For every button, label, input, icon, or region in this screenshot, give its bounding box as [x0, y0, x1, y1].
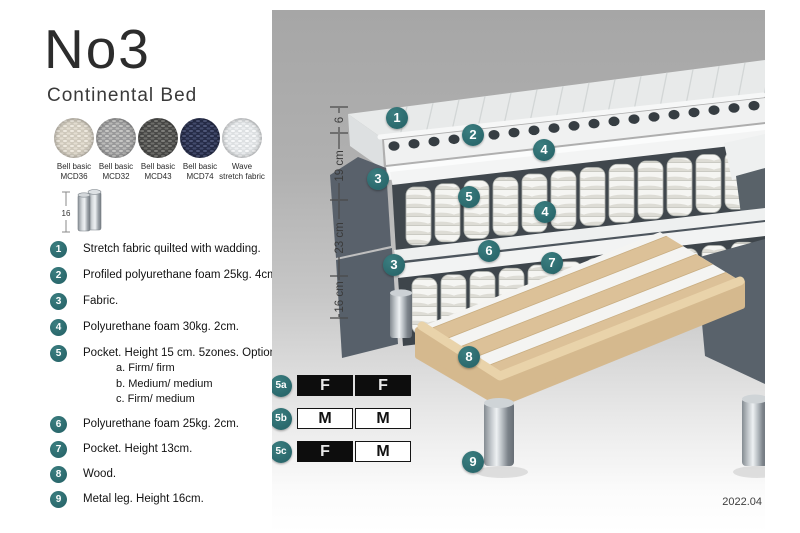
dim-label-lower-box: 23 cm: [334, 222, 346, 253]
legend-item-1: 1 Stretch fabric quilted with wadding.: [50, 241, 282, 258]
callout-4-lower-badge: 4: [534, 201, 556, 223]
fabric-swatch-label: Wave stretch fabric: [219, 162, 265, 181]
fabric-swatch-label: Bell basic MCD32: [99, 162, 133, 181]
leg-cylinders: [78, 190, 101, 231]
callout-7-badge: 7: [541, 252, 563, 274]
fabric-swatch-label: Bell basic MCD74: [183, 162, 217, 181]
legend-badge-7: 7: [50, 441, 67, 458]
version-label: 2022.04: [652, 496, 762, 508]
firmness-cell: F: [355, 375, 411, 396]
callout-3-lower-badge: 3: [383, 254, 405, 276]
firmness-cell: F: [297, 375, 353, 396]
callout-3-upper-badge: 3: [367, 168, 389, 190]
firmness-row-5b: 5b M M: [272, 408, 413, 429]
firmness-badge-5a: 5a: [272, 375, 292, 397]
legend-list: 1 Stretch fabric quilted with wadding. 2…: [50, 241, 282, 517]
firmness-row-5a: 5a F F: [272, 375, 413, 396]
legend-item-8: 8 Wood.: [50, 466, 282, 483]
fabric-swatch-image: [180, 118, 220, 158]
legend-badge-2: 2: [50, 267, 67, 284]
legend-item-9: 9 Metal leg. Height 16cm.: [50, 491, 282, 508]
legend-badge-3: 3: [50, 293, 67, 310]
dim-label-leg: 16 cm: [334, 281, 346, 312]
callout-8-badge: 8: [458, 346, 480, 368]
legend-text: Fabric.: [83, 293, 118, 310]
page-subtitle: Continental Bed: [47, 85, 197, 107]
legend-text: Polyurethane foam 30kg. 2cm.: [83, 319, 239, 336]
fabric-swatch-list: Bell basic MCD36 Bell basic MCD32 Bell b…: [53, 118, 263, 181]
legend-badge-9: 9: [50, 491, 67, 508]
firmness-cell: M: [355, 441, 411, 462]
fabric-swatch-label: Bell basic MCD43: [141, 162, 175, 181]
leg-height-label: 16: [62, 209, 71, 218]
firmness-row-5c: 5c F M: [272, 441, 413, 462]
legend-text: Polyurethane foam 25kg. 2cm.: [83, 416, 239, 433]
fabric-swatch-label: Bell basic MCD36: [57, 162, 91, 181]
legend-item-5-options: a. Firm/ firm b. Medium/ medium c. Firm/…: [116, 361, 282, 408]
legend-option-b: b. Medium/ medium: [116, 377, 282, 393]
fabric-swatch: Bell basic MCD36: [53, 118, 95, 181]
firmness-cell: M: [297, 408, 353, 429]
legend-badge-1: 1: [50, 241, 67, 258]
callout-2-badge: 2: [462, 124, 484, 146]
leg-dimension-icon: 16: [52, 186, 116, 243]
firmness-cell: M: [355, 408, 411, 429]
dim-label-upper-box: 19 cm: [334, 150, 346, 181]
legend-text: Wood.: [83, 466, 116, 483]
fabric-swatch: Bell basic MCD74: [179, 118, 221, 181]
metal-leg-back-left: [390, 289, 412, 338]
fabric-swatch: Wave stretch fabric: [221, 118, 263, 181]
legend-item-2: 2 Profiled polyurethane foam 25kg. 4cm.: [50, 267, 282, 284]
bed-cutaway-photo: 6 19 cm 23 cm 16 cm 1 2 4 3 5 4 6 7 3 8 …: [272, 10, 765, 533]
fabric-swatch-image: [96, 118, 136, 158]
legend-badge-5: 5: [50, 345, 67, 362]
fabric-swatch: Bell basic MCD32: [95, 118, 137, 181]
callout-6-badge: 6: [478, 240, 500, 262]
callout-9-badge: 9: [462, 451, 484, 473]
legend-option-c: c. Firm/ medium: [116, 392, 282, 408]
callout-1-badge: 1: [386, 107, 408, 129]
callout-5-badge: 5: [458, 186, 480, 208]
legend-text: Metal leg. Height 16cm.: [83, 491, 204, 508]
legend-badge-6: 6: [50, 416, 67, 433]
legend-text: Pocket. Height 13cm.: [83, 441, 192, 458]
title-block: No3 Continental Bed: [44, 22, 197, 107]
fabric-swatch-image: [54, 118, 94, 158]
dim-label-top-mattress: 6: [334, 117, 346, 123]
legend-badge-8: 8: [50, 466, 67, 483]
fabric-swatch-image: [222, 118, 262, 158]
legend-text: Stretch fabric quilted with wadding.: [83, 241, 261, 258]
page-title: No3: [44, 22, 197, 77]
legend-item-5: 5 Pocket. Height 15 cm. 5zones. Option:: [50, 345, 282, 362]
callout-4-upper-badge: 4: [533, 139, 555, 161]
legend-option-a: a. Firm/ firm: [116, 361, 282, 377]
legend-text: Profiled polyurethane foam 25kg. 4cm.: [83, 267, 280, 284]
fabric-swatch: Bell basic MCD43: [137, 118, 179, 181]
legend-item-4: 4 Polyurethane foam 30kg. 2cm.: [50, 319, 282, 336]
legend-text: Pocket. Height 15 cm. 5zones. Option:: [83, 345, 279, 362]
firmness-cell: F: [297, 441, 353, 462]
legend-item-6: 6 Polyurethane foam 25kg. 2cm.: [50, 416, 282, 433]
firmness-badge-5c: 5c: [272, 441, 292, 463]
firmness-badge-5b: 5b: [272, 408, 292, 430]
legend-item-7: 7 Pocket. Height 13cm.: [50, 441, 282, 458]
legend-item-3: 3 Fabric.: [50, 293, 282, 310]
legend-badge-4: 4: [50, 319, 67, 336]
leg-icon-drawing: 16: [52, 186, 116, 238]
fabric-swatch-image: [138, 118, 178, 158]
firmness-table: 5a F F 5b M M 5c F M: [272, 375, 413, 474]
